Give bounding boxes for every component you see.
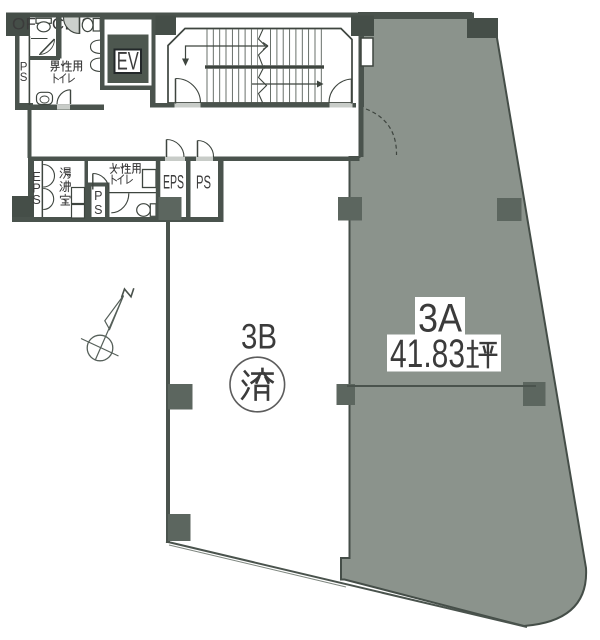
svg-text:3B: 3B <box>241 318 277 357</box>
svg-text:41.83: 41.83 <box>390 332 465 376</box>
svg-text:S: S <box>20 72 28 84</box>
svg-text:S: S <box>94 203 102 217</box>
svg-text:EV: EV <box>117 48 139 76</box>
svg-text:EPS: EPS <box>163 173 184 194</box>
svg-text:PS: PS <box>196 173 211 193</box>
svg-text:S: S <box>32 192 41 207</box>
svg-text:P: P <box>94 189 102 203</box>
